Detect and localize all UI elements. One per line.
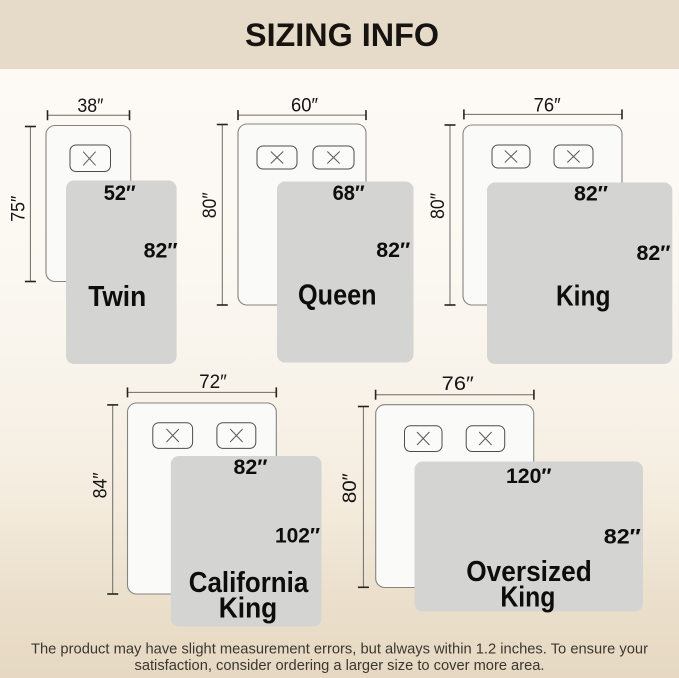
svg-text:King: King (219, 593, 278, 625)
svg-text:Twin: Twin (88, 281, 146, 313)
svg-text:82″: 82″ (144, 240, 178, 263)
svg-text:120″: 120″ (506, 465, 552, 488)
svg-text:SIZING INFO: SIZING INFO (245, 17, 439, 53)
svg-text:52″: 52″ (104, 182, 136, 205)
svg-text:82″: 82″ (637, 242, 671, 265)
svg-text:76″: 76″ (442, 374, 474, 395)
svg-text:72″: 72″ (199, 372, 227, 393)
svg-text:82″: 82″ (604, 525, 641, 548)
svg-text:102″: 102″ (275, 525, 320, 548)
svg-text:King: King (500, 581, 555, 613)
svg-text:80″: 80″ (340, 473, 361, 503)
svg-text:80″: 80″ (428, 193, 449, 219)
svg-text:38″: 38″ (77, 96, 103, 117)
svg-text:The product may have slight me: The product may have slight measurement … (31, 642, 648, 658)
svg-text:satisfaction, consider orderin: satisfaction, consider ordering a larger… (135, 658, 545, 674)
svg-text:Queen: Queen (298, 279, 377, 311)
svg-text:75″: 75″ (9, 195, 30, 221)
svg-text:80″: 80″ (200, 192, 221, 218)
svg-text:76″: 76″ (534, 96, 561, 117)
svg-text:68″: 68″ (333, 182, 365, 205)
svg-text:84″: 84″ (90, 472, 111, 498)
svg-text:82″: 82″ (574, 183, 608, 206)
svg-text:82″: 82″ (234, 456, 268, 479)
svg-text:King: King (556, 281, 611, 313)
svg-text:82″: 82″ (376, 239, 410, 262)
svg-text:60″: 60″ (291, 96, 318, 117)
